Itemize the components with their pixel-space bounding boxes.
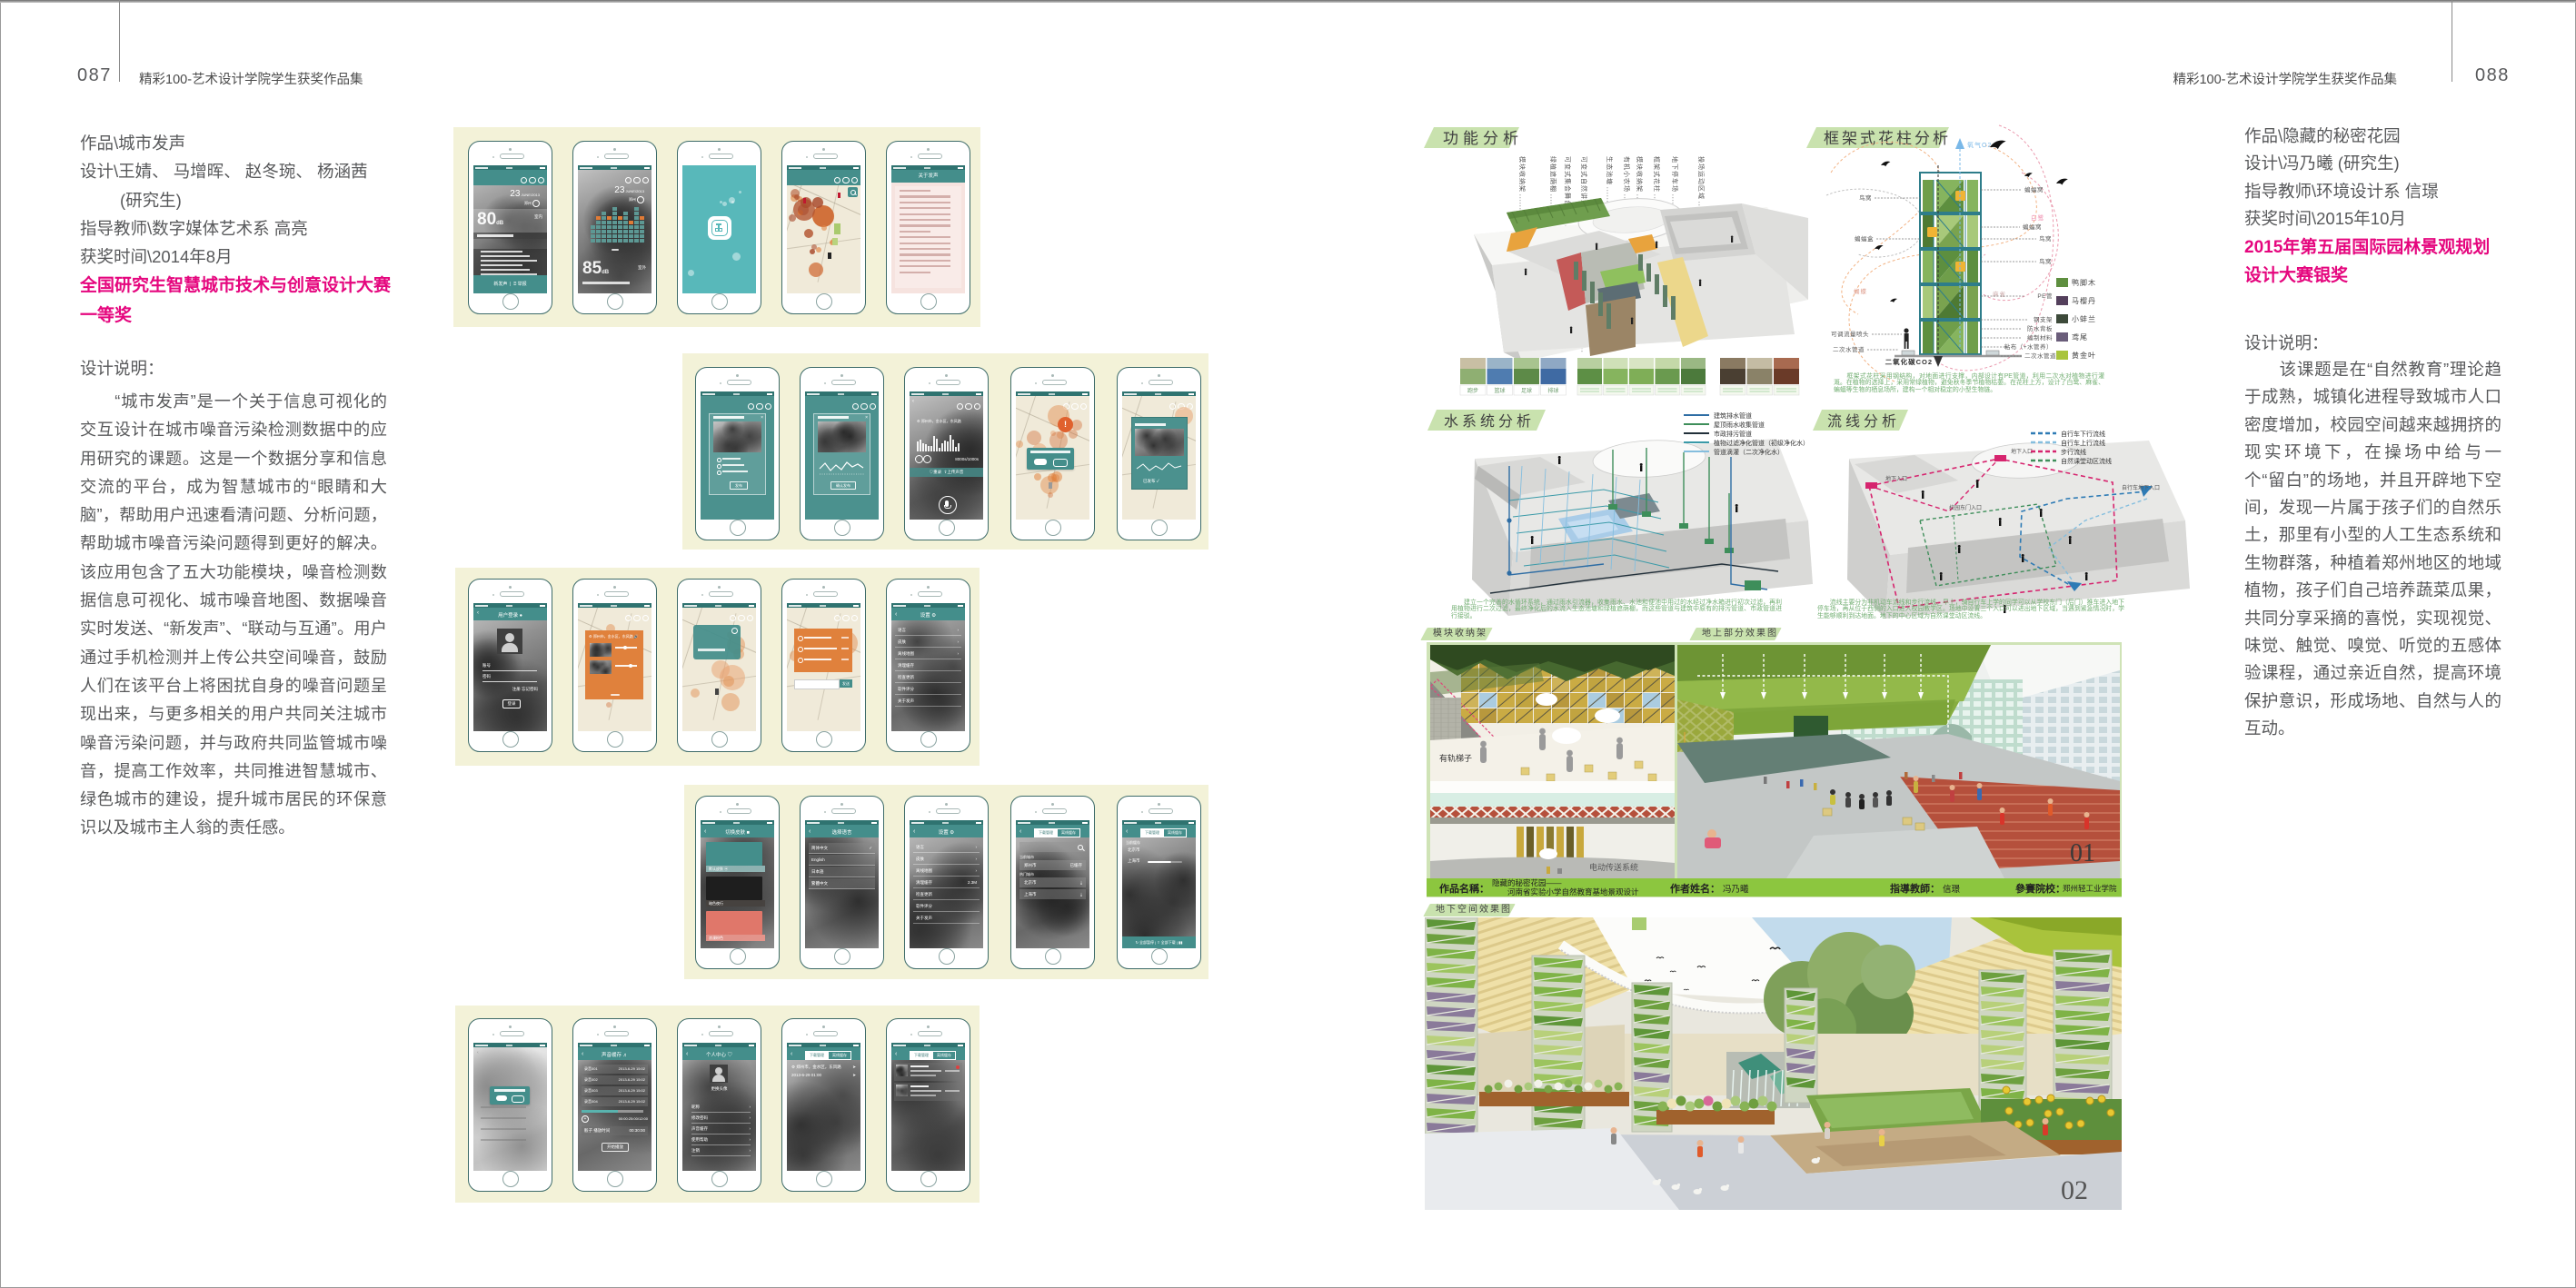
svg-text:可调流量喷头: 可调流量喷头 xyxy=(1831,330,1869,338)
svg-text:防水背板: 防水背板 xyxy=(2027,324,2053,332)
svg-text:排球: 排球 xyxy=(1547,387,1558,394)
svg-text:鸢尾: 鸢尾 xyxy=(2072,332,2088,342)
svg-text:氧气O2: 氧气O2 xyxy=(1967,141,1992,149)
svg-text:蝙蝠盒: 蝙蝠盒 xyxy=(1855,234,1874,243)
svg-text:管道滴灌（二次净化水）: 管道滴灌（二次净化水） xyxy=(1714,448,1784,456)
svg-text:麻雀: 麻雀 xyxy=(1993,290,2006,298)
svg-text:地下入口: 地下入口 xyxy=(2011,448,2033,455)
svg-text:有轨梯子: 有轨梯子 xyxy=(1439,753,1472,763)
svg-text:绿植遮荫棚: 绿植遮荫棚 xyxy=(1549,156,1557,193)
svg-text:屋顶雨水收集管道: 屋顶雨水收集管道 xyxy=(1714,421,1765,429)
svg-text:可变式集会舞台: 可变式集会舞台 xyxy=(1564,156,1572,207)
svg-text:植物过滤净化管道（初级净化水）: 植物过滤净化管道（初级净化水） xyxy=(1714,439,1809,447)
svg-text:流线分析: 流线分析 xyxy=(1827,413,1900,430)
svg-text:自行车下行流线: 自行车下行流线 xyxy=(2061,430,2105,438)
svg-text:模块收纳架: 模块收纳架 xyxy=(1518,156,1527,193)
svg-text:钢支架: 钢支架 xyxy=(2034,315,2053,323)
svg-text:建筑排水管道: 建筑排水管道 xyxy=(1714,411,1752,420)
svg-text:模块收纳架: 模块收纳架 xyxy=(1636,156,1644,193)
svg-text:马樱丹: 马樱丹 xyxy=(2072,296,2096,305)
svg-text:黄金叶: 黄金叶 xyxy=(2072,351,2096,360)
svg-text:自行车地下入口: 自行车地下入口 xyxy=(2122,484,2160,491)
svg-text:功能分析: 功能分析 xyxy=(1443,130,1523,147)
svg-text:鸟窝: 鸟窝 xyxy=(2039,234,2052,243)
svg-text:篮球: 篮球 xyxy=(1494,387,1505,394)
svg-text:小蚌兰: 小蚌兰 xyxy=(2072,314,2096,323)
svg-text:二氧化碳CO2: 二氧化碳CO2 xyxy=(1885,357,1933,366)
svg-text:PE管: PE管 xyxy=(2037,292,2053,300)
svg-text:编制材料: 编制材料 xyxy=(2027,333,2053,342)
svg-text:电动传送系统: 电动传送系统 xyxy=(1589,862,1638,872)
svg-text:可变式自然讲堂: 可变式自然讲堂 xyxy=(1580,156,1588,207)
svg-text:操场运动区域: 操场运动区域 xyxy=(1697,156,1706,200)
svg-text:鸟窝: 鸟窝 xyxy=(2039,257,2052,265)
svg-text:水系统分析: 水系统分析 xyxy=(1444,413,1535,430)
svg-text:二次水管道: 二次水管道 xyxy=(2024,352,2056,360)
svg-text:鸟窝: 鸟窝 xyxy=(1859,193,1872,202)
svg-text:跑步: 跑步 xyxy=(1467,387,1478,394)
svg-text:鸭脚木: 鸭脚木 xyxy=(2072,278,2096,287)
svg-text:蝙蝠窝: 蝙蝠窝 xyxy=(2023,223,2042,231)
svg-text:足球: 足球 xyxy=(1521,387,1532,394)
svg-text:市政排污管道: 市政排污管道 xyxy=(1714,430,1752,438)
svg-text:白鹭: 白鹭 xyxy=(2031,213,2044,222)
svg-text:框架式花柱: 框架式花柱 xyxy=(1653,156,1661,193)
svg-text:步行流线: 步行流线 xyxy=(2061,448,2086,456)
svg-text:蝴蝶: 蝴蝶 xyxy=(1854,287,1867,295)
svg-text:二次水管道: 二次水管道 xyxy=(1833,345,1865,353)
svg-text:蝙蝠窝: 蝙蝠窝 xyxy=(2024,185,2044,193)
svg-text:02: 02 xyxy=(2061,1175,2088,1205)
svg-text:粘布（+水管养）: 粘布（+水管养） xyxy=(2004,342,2053,351)
svg-text:校园东门入口: 校园东门入口 xyxy=(1949,504,1982,511)
svg-text:生态池塘: 生态池塘 xyxy=(1606,156,1614,185)
svg-text:地下入口: 地下入口 xyxy=(1885,475,1907,482)
svg-text:地下停车场: 地下停车场 xyxy=(1671,156,1679,193)
svg-text:有机小农场: 有机小农场 xyxy=(1623,156,1631,193)
svg-text:框架式花柱分析: 框架式花柱分析 xyxy=(1824,130,1951,147)
svg-text:自行车上行流线: 自行车上行流线 xyxy=(2061,439,2105,447)
svg-text:自然课堂动区流线: 自然课堂动区流线 xyxy=(2061,457,2112,465)
svg-text:01: 01 xyxy=(2070,839,2095,867)
